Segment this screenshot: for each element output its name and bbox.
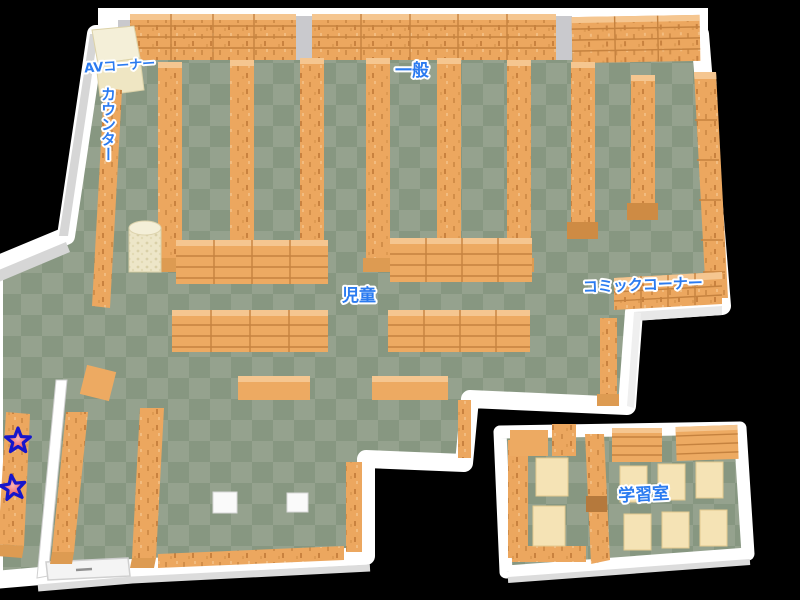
wall-pillar: [296, 16, 312, 60]
label-study-room: 学習室: [618, 483, 670, 507]
wall-bookshelf: [675, 425, 738, 461]
wall-bookshelf-top-b: [312, 14, 556, 60]
label-children: 児童: [341, 285, 376, 306]
study-desk[interactable]: [536, 458, 568, 496]
study-desk[interactable]: [696, 462, 723, 498]
wall-pillar: [556, 16, 572, 60]
wall-bookshelf-top-a: [130, 14, 296, 60]
bookshelf: [510, 430, 548, 456]
kids-bookshelf: [172, 310, 328, 352]
display-kiosk: [129, 221, 161, 272]
library-floor-map: AVコーナー カウンター 一般 児童 コミックコーナー: [0, 0, 800, 600]
label-counter: カウンター: [99, 87, 117, 162]
kids-bookshelf: [388, 310, 530, 352]
door-handle-icon: [76, 569, 92, 570]
wall-bookshelf: [612, 428, 662, 462]
map-canvas: AVコーナー カウンター 一般 児童 コミックコーナー: [0, 0, 800, 600]
wall-bookshelf: [346, 462, 362, 552]
bookshelf: [512, 546, 586, 562]
bookshelf: [508, 440, 528, 558]
kids-bookshelf: [176, 240, 328, 284]
stool-box: [287, 493, 308, 512]
study-desk[interactable]: [624, 514, 651, 550]
study-desk[interactable]: [662, 512, 689, 548]
bookshelf: [458, 400, 471, 458]
stool-box: [213, 492, 237, 513]
label-general: 一般: [395, 60, 429, 81]
wall-bookshelf-top-c: [572, 15, 701, 63]
kids-bookshelf: [390, 238, 532, 282]
study-desk[interactable]: [700, 510, 727, 546]
study-desk[interactable]: [533, 506, 565, 546]
bookshelf: [552, 424, 576, 456]
study-room: 学習室: [500, 424, 750, 580]
